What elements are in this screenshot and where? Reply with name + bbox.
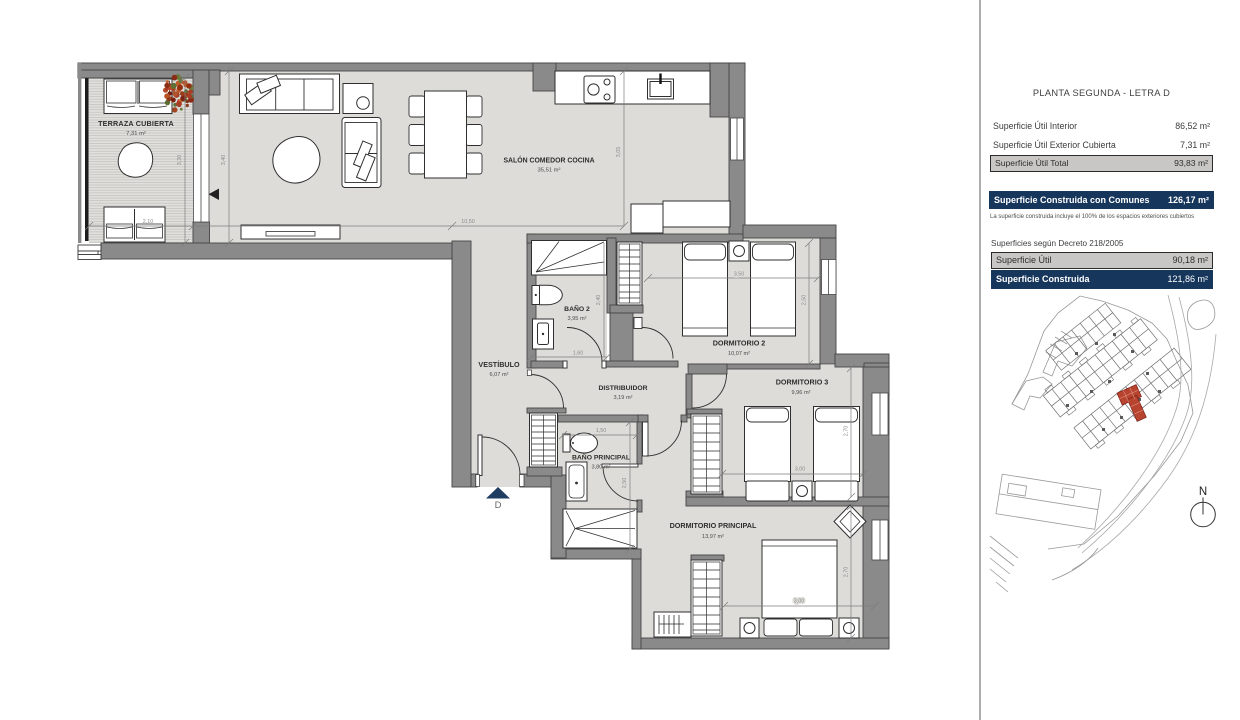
svg-text:3,80 m²: 3,80 m²	[592, 465, 611, 471]
svg-text:DORMITORIO 2: DORMITORIO 2	[713, 339, 766, 348]
svg-text:DORMITORIO 3: DORMITORIO 3	[776, 378, 829, 387]
svg-text:3,19 m²: 3,19 m²	[614, 395, 633, 401]
svg-text:2,70: 2,70	[844, 567, 850, 578]
svg-text:DISTRIBUIDOR: DISTRIBUIDOR	[598, 385, 647, 392]
svg-text:35,51 m²: 35,51 m²	[538, 168, 561, 174]
svg-text:SALÓN COMEDOR COCINA: SALÓN COMEDOR COCINA	[503, 156, 594, 165]
svg-text:D: D	[495, 500, 502, 511]
svg-text:3,00: 3,00	[795, 467, 806, 473]
svg-text:N: N	[1199, 486, 1207, 498]
svg-text:3,95 m²: 3,95 m²	[568, 316, 587, 322]
svg-text:BAÑO PRINCIPAL: BAÑO PRINCIPAL	[572, 453, 630, 462]
svg-text:DORMITORIO PRINCIPAL: DORMITORIO PRINCIPAL	[670, 521, 757, 530]
svg-text:3,30: 3,30	[177, 155, 183, 166]
svg-text:1,60: 1,60	[573, 351, 584, 357]
svg-text:6,07 m²: 6,07 m²	[490, 372, 509, 378]
svg-text:2,50: 2,50	[622, 478, 628, 489]
svg-text:13,97 m²: 13,97 m²	[702, 534, 724, 540]
svg-text:2,10: 2,10	[143, 219, 154, 225]
svg-text:BAÑO 2: BAÑO 2	[564, 304, 590, 313]
svg-text:9,96 m²: 9,96 m²	[792, 390, 811, 396]
svg-text:VESTÍBULO: VESTÍBULO	[478, 360, 520, 369]
svg-text:2,50: 2,50	[802, 295, 808, 306]
svg-text:2,70: 2,70	[844, 426, 850, 437]
svg-text:7,31 m²: 7,31 m²	[126, 131, 146, 137]
svg-text:TERRAZA CUBIERTA: TERRAZA CUBIERTA	[98, 119, 174, 128]
svg-text:3,40: 3,40	[221, 155, 227, 166]
svg-text:3,05: 3,05	[616, 147, 622, 158]
svg-text:2,40: 2,40	[596, 295, 602, 306]
svg-text:3,50: 3,50	[734, 272, 745, 278]
svg-text:3,00: 3,00	[794, 599, 805, 605]
svg-text:10,50: 10,50	[461, 219, 475, 225]
svg-text:10,07 m²: 10,07 m²	[728, 351, 750, 357]
svg-text:1,50: 1,50	[596, 428, 607, 434]
